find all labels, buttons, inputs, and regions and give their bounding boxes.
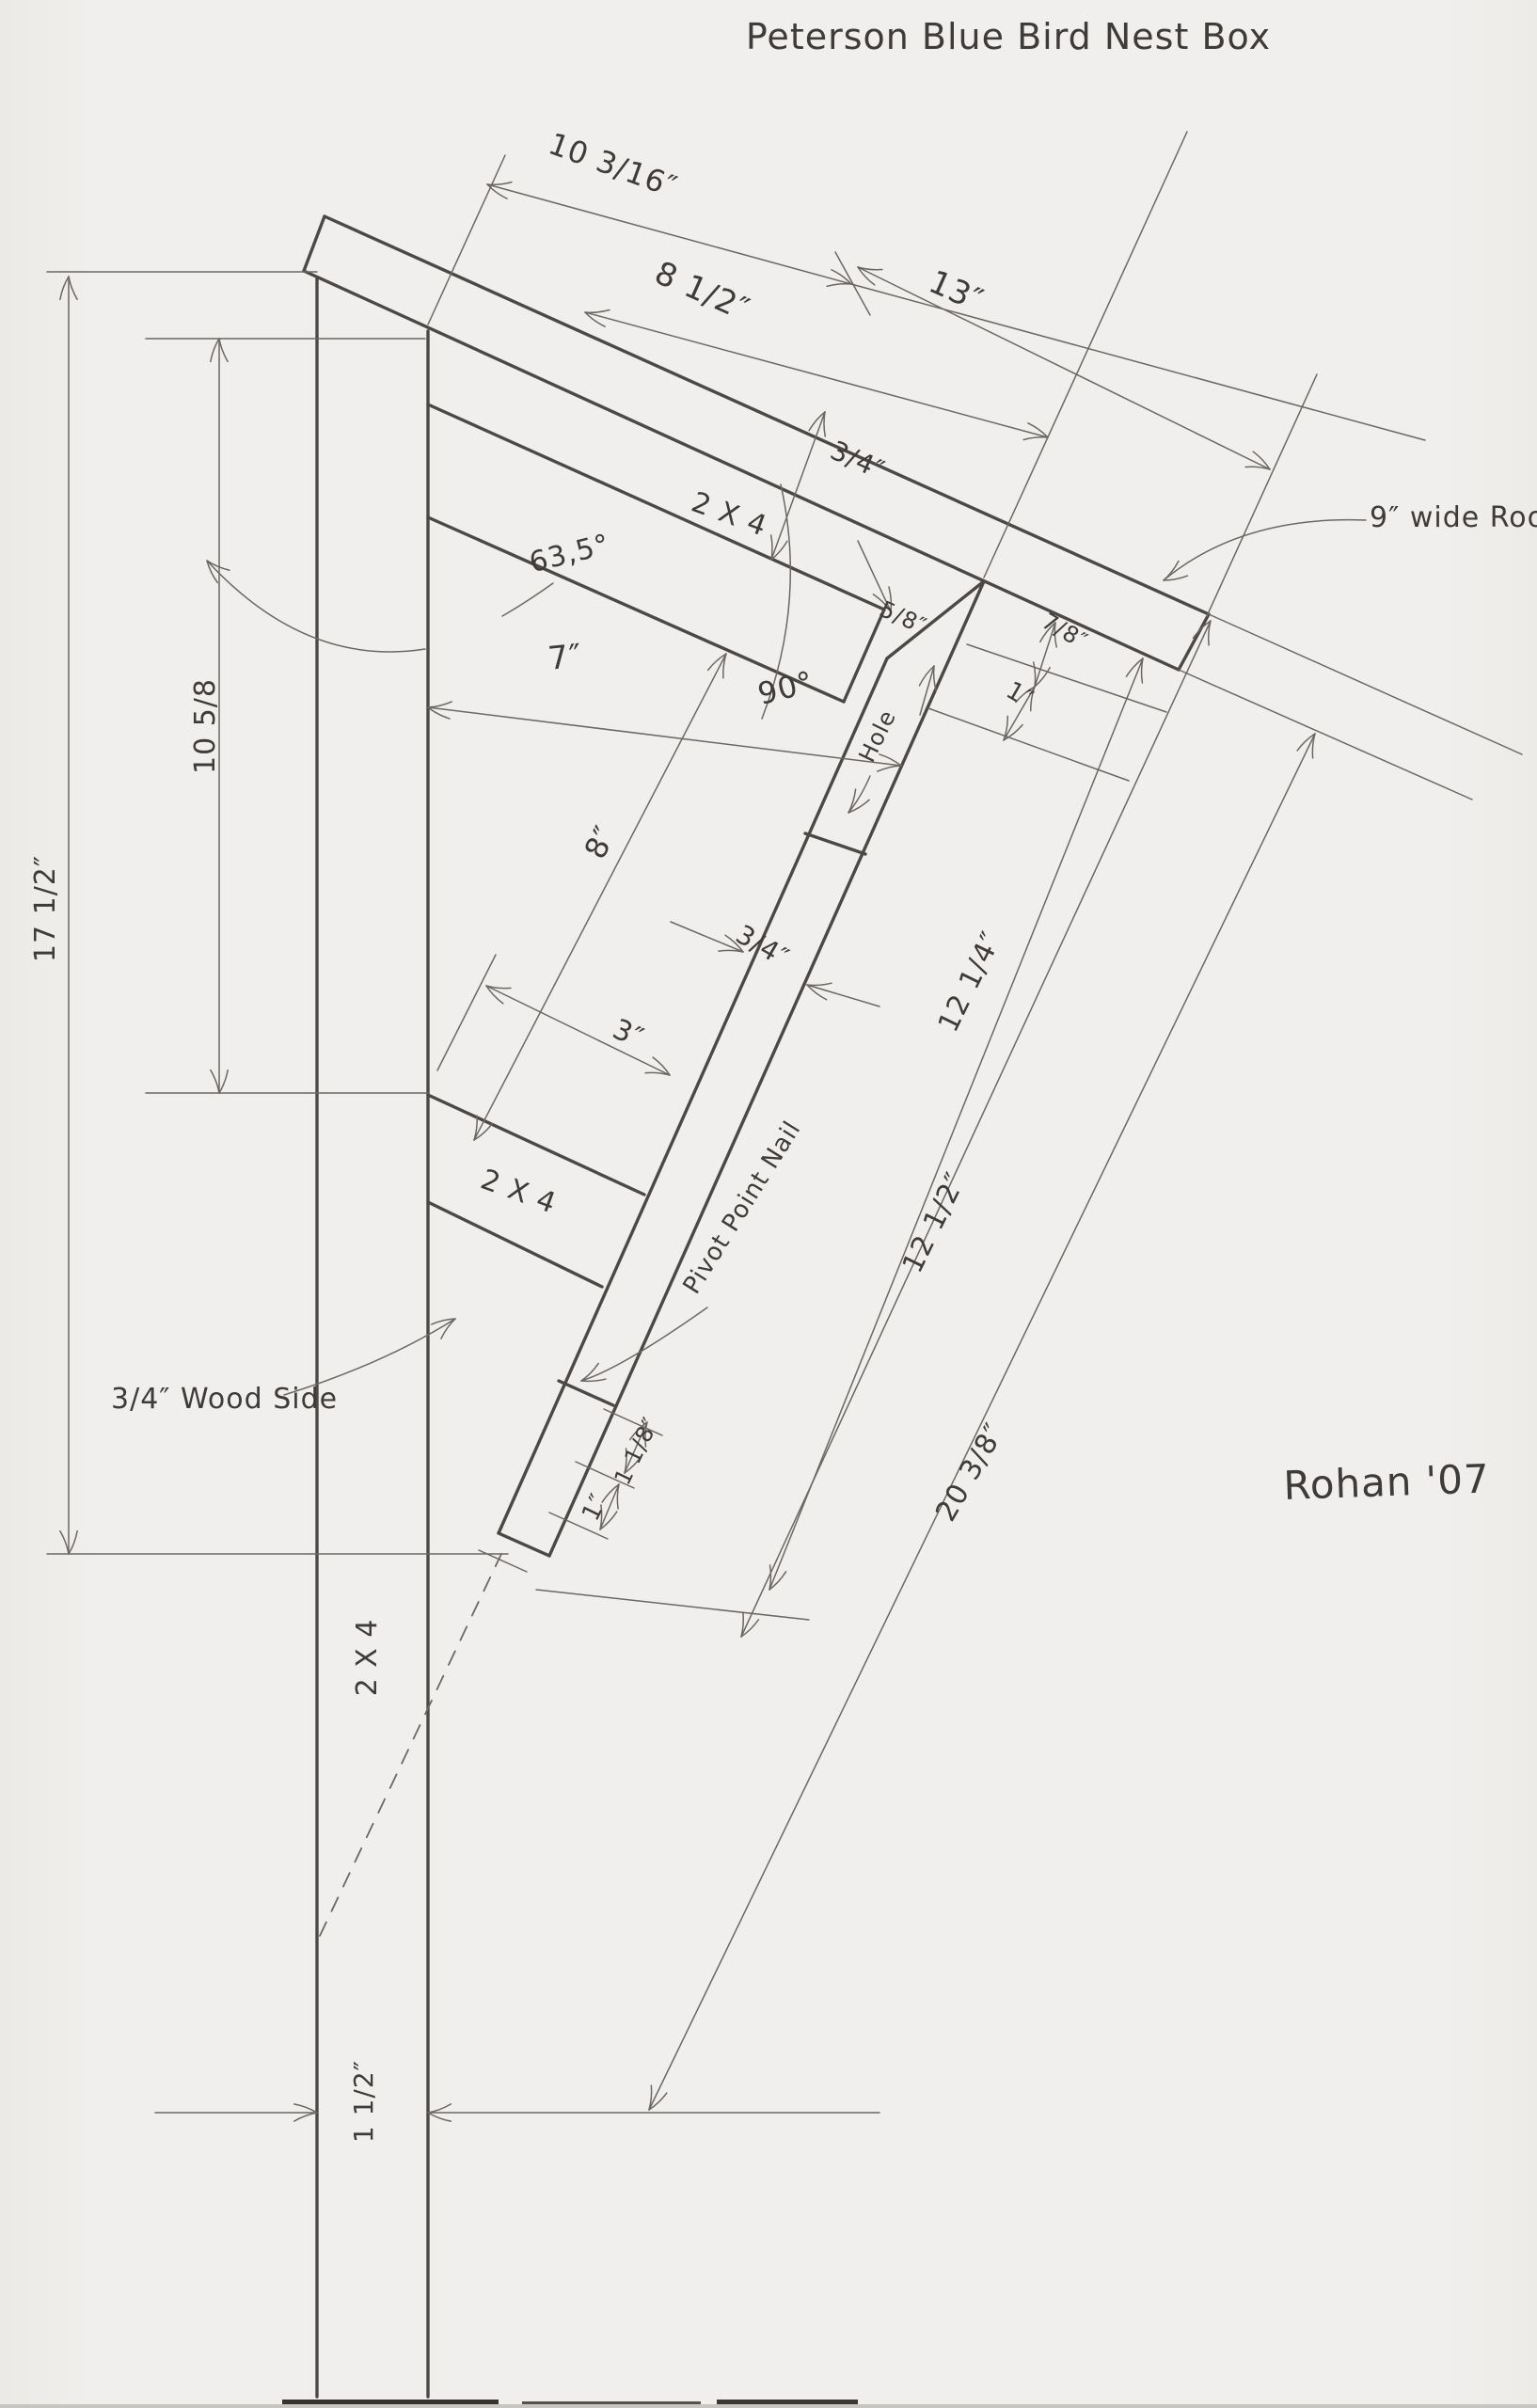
label-roof-support-2x4: 2 X 4 <box>687 485 771 543</box>
note-pivot-point-nail: Pivot Point Nail <box>678 1116 807 1299</box>
dim-post-width-1-1-2: 1 1/2″ <box>348 2060 379 2143</box>
dim-front-upper-8: 8″ <box>578 819 624 863</box>
label-floor-block-2x4: 2 X 4 <box>476 1163 561 1220</box>
dim-post-total-17-1-2: 17 1/2″ <box>29 855 62 962</box>
nest-box-plan-drawing: Peterson Blue Bird Nest Box 10 3/16″ 8 1… <box>0 0 1537 2408</box>
dim-inner-width-7: 7″ <box>547 637 584 678</box>
dim-overall-20-3-8: 20 3/8″ <box>929 1418 1011 1527</box>
drawing-title: Peterson Blue Bird Nest Box <box>746 16 1271 57</box>
signature: Rohan '07 <box>1283 1455 1491 1509</box>
door-swing-dashed-line <box>320 1554 501 1936</box>
dim-floor-span-3: 3″ <box>608 1013 649 1055</box>
angle-roof-63-5: 63,5° <box>526 528 613 579</box>
dim-gap-7-8: 7/8″ <box>1038 608 1093 655</box>
dim-gap-1: 1″ <box>1001 676 1038 714</box>
dim-roof-overhang: 10 3/16″ <box>544 125 682 205</box>
dim-post-upper-10-5-8: 10 5/8 <box>189 678 222 774</box>
angle-front-90: 90° <box>754 664 817 712</box>
note-roof-width: 9″ wide Roof <box>1370 501 1537 534</box>
structure-lines <box>304 216 1209 2397</box>
dim-roof-thickness: 3/4″ <box>826 435 890 485</box>
dim-roof-length: 13″ <box>923 263 989 321</box>
dim-roof-upper: 8 1/2″ <box>649 254 755 329</box>
note-wood-side: 3/4″ Wood Side <box>111 1383 338 1416</box>
leader-lines <box>207 484 1366 1395</box>
dim-front-thickness-3-4: 3/4″ <box>731 919 795 974</box>
dim-notch-5-8: 5/8″ <box>876 595 931 640</box>
label-post-2x4: 2 X 4 <box>351 1619 384 1697</box>
sketch-sheet: Peterson Blue Bird Nest Box 10 3/16″ 8 1… <box>0 0 1537 2408</box>
dim-door-gap-1-1-8: 1 1/8″ <box>609 1413 664 1489</box>
dimension-lines <box>60 182 1315 2122</box>
scan-edge-smudge <box>0 2400 1537 2408</box>
dim-door-length-12-1-2: 12 1/2″ <box>896 1167 974 1278</box>
labels: Peterson Blue Bird Nest Box 10 3/16″ 8 1… <box>29 16 1537 2143</box>
